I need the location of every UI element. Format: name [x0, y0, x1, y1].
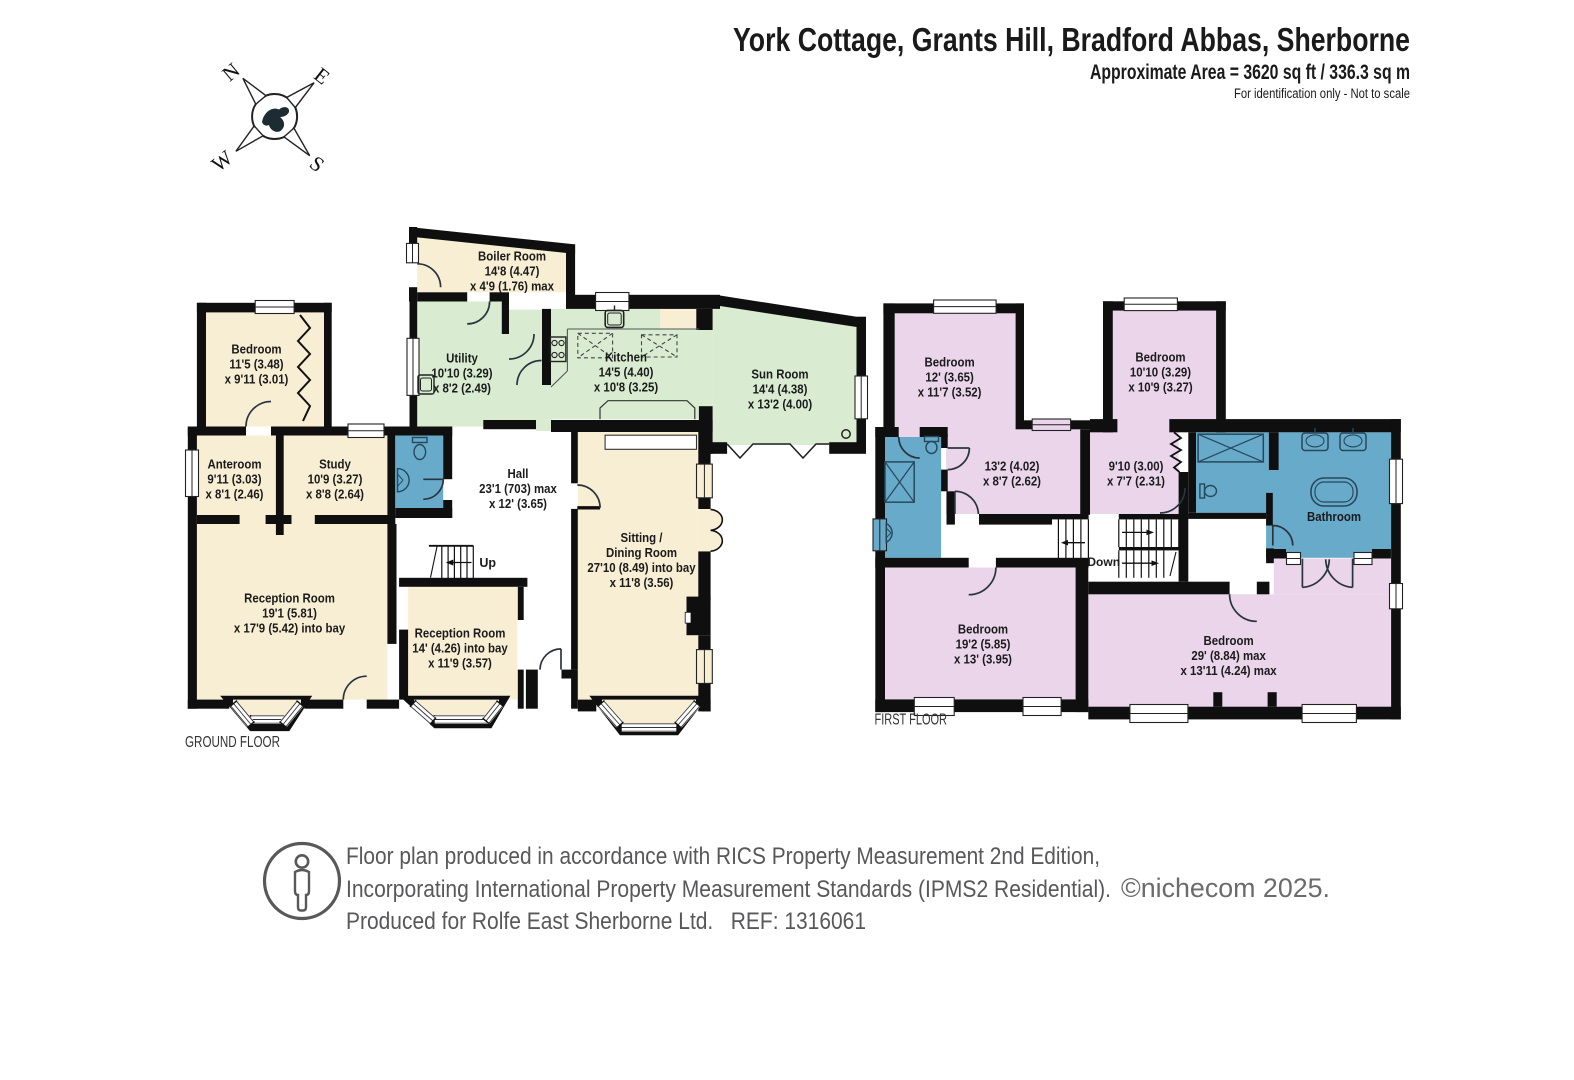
svg-text:Boiler Room: Boiler Room	[478, 249, 546, 264]
svg-text:©nichecom 2025.: ©nichecom 2025.	[1121, 873, 1330, 903]
svg-text:x 13' (3.95): x 13' (3.95)	[954, 652, 1012, 667]
svg-text:Hall: Hall	[508, 466, 529, 481]
svg-text:14'5 (4.40): 14'5 (4.40)	[599, 365, 654, 380]
svg-text:Anteroom: Anteroom	[208, 457, 262, 472]
svg-text:x 7'7 (2.31): x 7'7 (2.31)	[1107, 474, 1165, 489]
svg-text:27'10 (8.49) into bay: 27'10 (8.49) into bay	[587, 560, 695, 575]
svg-text:x 8'7 (2.62): x 8'7 (2.62)	[983, 474, 1041, 489]
svg-text:Approximate Area = 3620 sq ft: Approximate Area = 3620 sq ft / 336.3 sq…	[1090, 61, 1410, 84]
svg-text:x 8'8 (2.64): x 8'8 (2.64)	[306, 487, 364, 502]
svg-text:x 11'7 (3.52): x 11'7 (3.52)	[918, 385, 982, 400]
svg-text:Produced for Rolfe East Sherbo: Produced for Rolfe East Sherborne Ltd. R…	[346, 908, 866, 935]
svg-text:10'10 (3.29): 10'10 (3.29)	[431, 366, 492, 381]
svg-text:Bedroom: Bedroom	[1204, 633, 1254, 648]
svg-text:x 10'9 (3.27): x 10'9 (3.27)	[1128, 380, 1192, 395]
svg-text:Reception Room: Reception Room	[415, 626, 506, 641]
svg-text:x 8'2 (2.49): x 8'2 (2.49)	[433, 381, 491, 396]
svg-text:x 13'11 (4.24) max: x 13'11 (4.24) max	[1181, 663, 1277, 678]
svg-text:Bathroom: Bathroom	[1307, 509, 1361, 524]
svg-text:10'9 (3.27): 10'9 (3.27)	[308, 472, 363, 487]
svg-text:29' (8.84) max: 29' (8.84) max	[1191, 648, 1266, 663]
svg-text:23'1 (703) max: 23'1 (703) max	[479, 481, 557, 496]
svg-text:14' (4.26) into bay: 14' (4.26) into bay	[412, 641, 508, 656]
svg-text:x 11'8 (3.56): x 11'8 (3.56)	[610, 575, 674, 590]
svg-text:x 10'8 (3.25): x 10'8 (3.25)	[594, 380, 658, 395]
svg-text:Floor plan produced in accorda: Floor plan produced in accordance with R…	[346, 843, 1100, 870]
svg-text:14'4 (4.38): 14'4 (4.38)	[753, 382, 808, 397]
svg-text:GROUND FLOOR: GROUND FLOOR	[185, 734, 280, 751]
svg-text:Sun Room: Sun Room	[751, 367, 808, 382]
svg-text:Up: Up	[479, 556, 496, 570]
svg-text:Incorporating International Pr: Incorporating International Property Mea…	[346, 876, 1111, 903]
svg-text:x 13'2 (4.00): x 13'2 (4.00)	[748, 397, 812, 412]
svg-text:11'5 (3.48): 11'5 (3.48)	[229, 357, 283, 372]
svg-text:Bedroom: Bedroom	[231, 342, 281, 357]
svg-text:FIRST FLOOR: FIRST FLOOR	[875, 712, 948, 729]
svg-text:x 8'1 (2.46): x 8'1 (2.46)	[205, 487, 263, 502]
svg-text:19'2 (5.85): 19'2 (5.85)	[956, 637, 1011, 652]
svg-text:9'10 (3.00): 9'10 (3.00)	[1109, 459, 1164, 474]
svg-text:For identification only - Not: For identification only - Not to scale	[1234, 86, 1410, 101]
svg-text:x 12' (3.65): x 12' (3.65)	[489, 496, 547, 511]
svg-text:Bedroom: Bedroom	[958, 622, 1008, 637]
svg-text:14'8 (4.47): 14'8 (4.47)	[485, 264, 540, 279]
svg-text:Kitchen: Kitchen	[605, 350, 647, 365]
svg-text:x 4'9 (1.76) max: x 4'9 (1.76) max	[470, 279, 554, 294]
svg-text:Sitting /: Sitting /	[621, 530, 663, 545]
svg-text:x 17'9 (5.42) into bay: x 17'9 (5.42) into bay	[234, 621, 346, 636]
svg-text:Bedroom: Bedroom	[1135, 350, 1185, 365]
svg-text:Reception Room: Reception Room	[244, 591, 335, 606]
svg-text:10'10 (3.29): 10'10 (3.29)	[1130, 365, 1191, 380]
svg-text:x 9'11 (3.01): x 9'11 (3.01)	[225, 372, 289, 387]
svg-text:Study: Study	[319, 457, 351, 472]
svg-text:12' (3.65): 12' (3.65)	[925, 370, 973, 385]
svg-text:Utility: Utility	[446, 351, 478, 366]
svg-text:York Cottage, Grants Hill, Br: York Cottage, Grants Hill, Bradford Abba…	[733, 21, 1410, 58]
svg-text:Dining Room: Dining Room	[606, 545, 677, 560]
svg-text:x 11'9 (3.57): x 11'9 (3.57)	[428, 656, 492, 671]
svg-text:19'1 (5.81): 19'1 (5.81)	[262, 606, 317, 621]
svg-text:13'2 (4.02): 13'2 (4.02)	[985, 459, 1040, 474]
svg-text:Down: Down	[1087, 555, 1120, 569]
svg-text:9'11 (3.03): 9'11 (3.03)	[207, 472, 261, 487]
svg-text:Bedroom: Bedroom	[925, 355, 975, 370]
